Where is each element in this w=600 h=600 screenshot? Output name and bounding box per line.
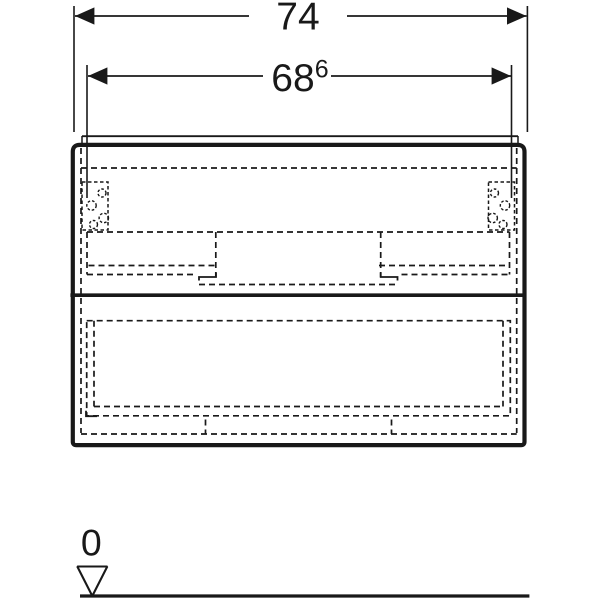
svg-text:0: 0 [81,521,102,563]
svg-text:74: 74 [276,0,319,39]
